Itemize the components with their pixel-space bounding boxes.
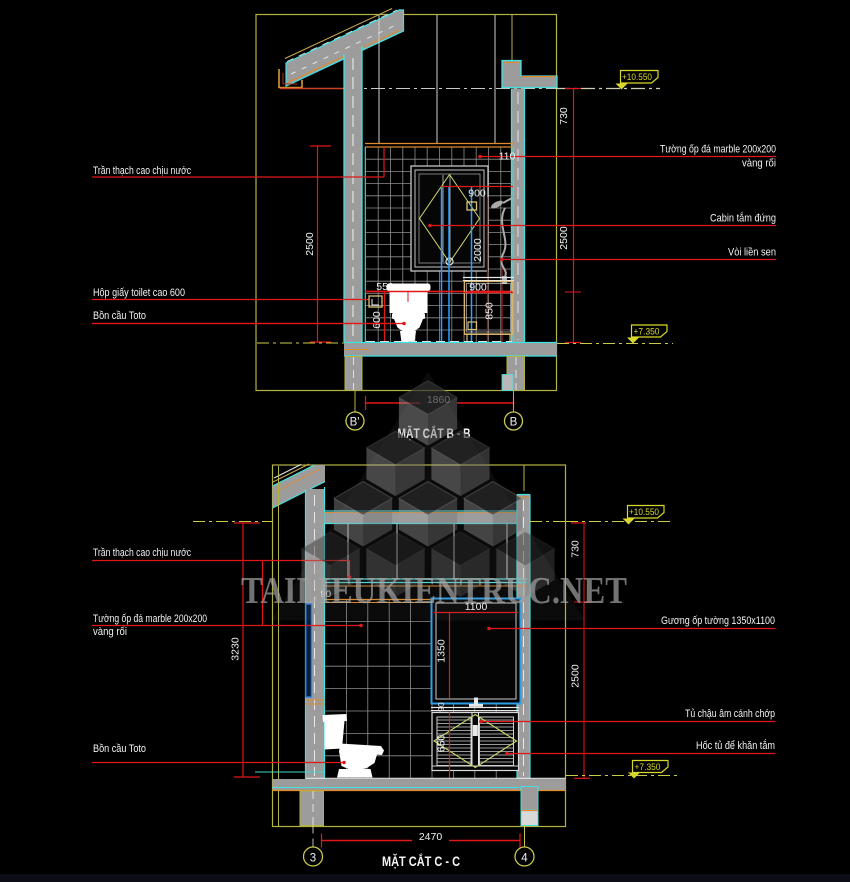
svg-text:B: B xyxy=(510,417,518,429)
svg-text:Trần thạch cao chịu nước: Trần thạch cao chịu nước xyxy=(93,165,191,177)
svg-text:Trần thạch cao chịu nước: Trần thạch cao chịu nước xyxy=(93,547,191,559)
svg-text:Gương ốp tường 1350x1100: Gương ốp tường 1350x1100 xyxy=(661,615,775,627)
svg-text:2500: 2500 xyxy=(558,226,570,250)
svg-text:1350: 1350 xyxy=(436,639,448,663)
svg-text:2500: 2500 xyxy=(570,664,582,688)
svg-text:3: 3 xyxy=(310,853,316,865)
svg-text:Hốc tủ để khăn tắm: Hốc tủ để khăn tắm xyxy=(696,739,775,752)
svg-text:Bồn cầu Toto: Bồn cầu Toto xyxy=(93,310,146,322)
svg-text:+10.550: +10.550 xyxy=(622,72,652,82)
svg-text:90: 90 xyxy=(436,702,446,712)
svg-text:+10.550: +10.550 xyxy=(629,507,659,517)
svg-text:4: 4 xyxy=(521,853,528,865)
svg-text:110: 110 xyxy=(499,151,516,163)
svg-text:Tủ chậu âm cánh chớp: Tủ chậu âm cánh chớp xyxy=(685,708,775,720)
svg-text:Tường ốp đá marble 200x200: Tường ốp đá marble 200x200 xyxy=(93,613,207,625)
svg-text:B': B' xyxy=(350,417,360,429)
svg-text:730: 730 xyxy=(570,540,582,558)
svg-text:Vòi liền sen: Vòi liền sen xyxy=(728,247,776,259)
svg-text:Cabin tắm đứng: Cabin tắm đứng xyxy=(710,212,776,225)
svg-text:+7.350: +7.350 xyxy=(635,762,661,772)
svg-text:Tường ốp đá marble 200x200: Tường ốp đá marble 200x200 xyxy=(660,144,776,156)
svg-text:TAILIEUKIENTRUC.NET: TAILIEUKIENTRUC.NET xyxy=(241,570,627,612)
svg-text:900: 900 xyxy=(469,282,487,294)
svg-text:vàng rối: vàng rối xyxy=(93,626,127,638)
svg-text:730: 730 xyxy=(558,107,570,125)
svg-text:+7.350: +7.350 xyxy=(634,326,660,336)
svg-text:2500: 2500 xyxy=(304,232,316,256)
svg-text:2470: 2470 xyxy=(419,831,443,843)
svg-text:Hộp giấy toilet cao 600: Hộp giấy toilet cao 600 xyxy=(93,287,185,299)
svg-text:Bồn cầu Toto: Bồn cầu Toto xyxy=(93,743,146,755)
svg-text:vàng rối: vàng rối xyxy=(742,158,776,170)
svg-text:850: 850 xyxy=(484,302,496,320)
svg-text:MẶT CẮT C - C: MẶT CẮT C - C xyxy=(382,854,460,869)
svg-text:3230: 3230 xyxy=(230,637,242,661)
svg-text:650: 650 xyxy=(436,735,448,753)
svg-text:2000: 2000 xyxy=(472,238,484,262)
svg-text:900: 900 xyxy=(468,188,486,200)
svg-text:600: 600 xyxy=(371,311,383,329)
